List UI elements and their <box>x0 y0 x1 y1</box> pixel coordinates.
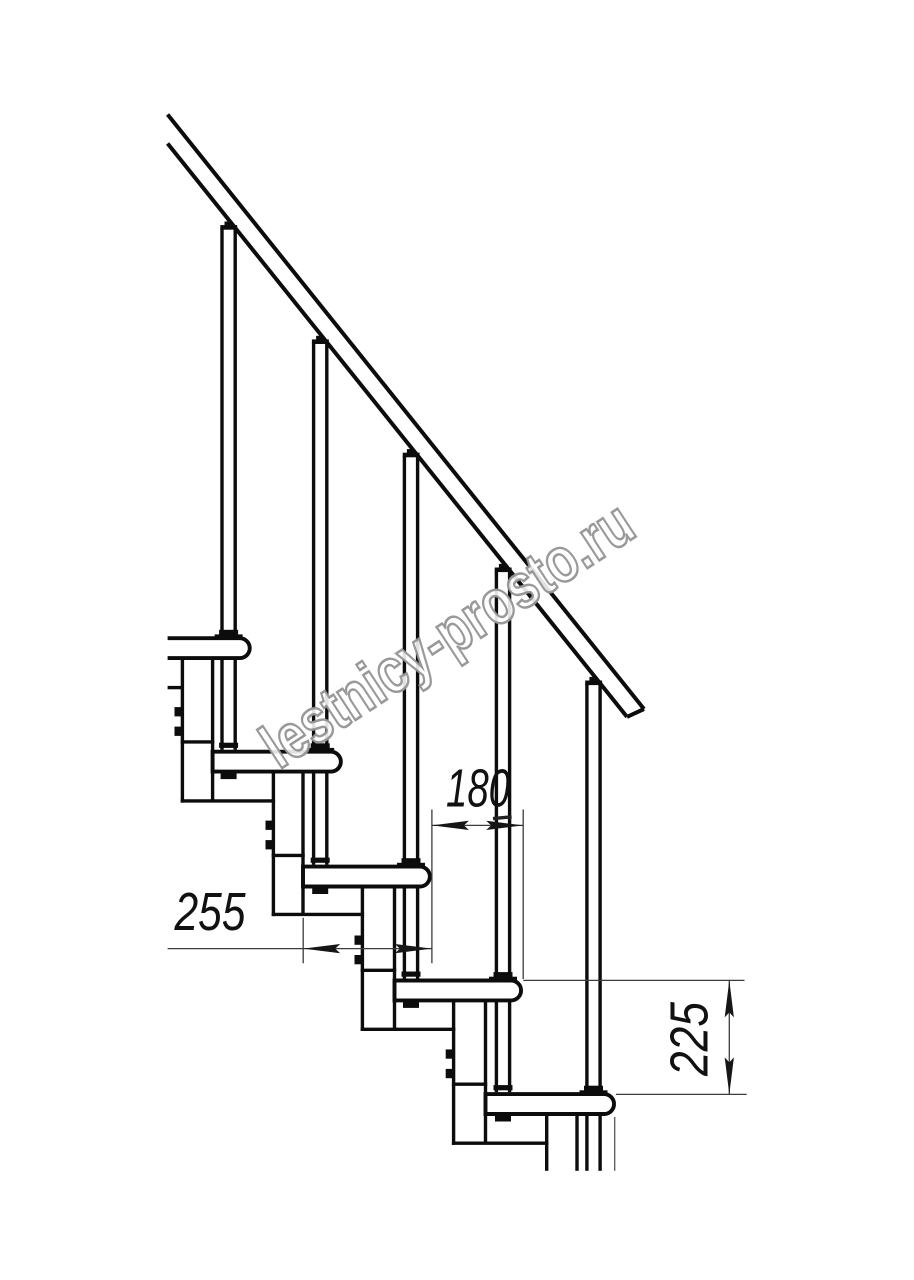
svg-text:225: 225 <box>660 1001 720 1077</box>
svg-text:255: 255 <box>174 882 247 942</box>
svg-text:180: 180 <box>446 759 510 819</box>
